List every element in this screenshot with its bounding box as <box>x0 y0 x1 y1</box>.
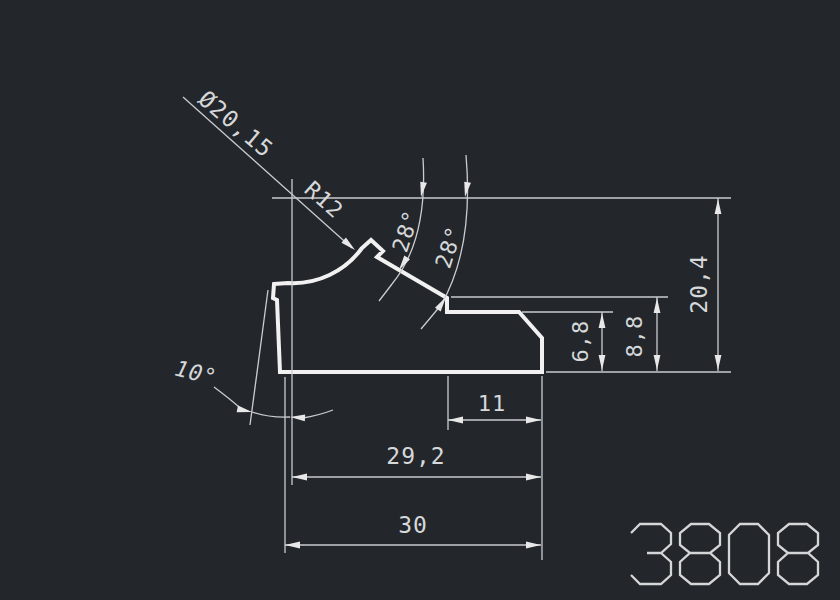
radius-label: R12 <box>300 176 348 223</box>
inner-step-height-label: 6,8 <box>568 320 593 363</box>
cad-canvas: Ø20,15 R12 28° 28° 10° 20,4 8,8 6,8 11 2… <box>0 0 840 600</box>
dim-arrow-icon <box>715 199 722 214</box>
total-height-label: 20,4 <box>686 254 712 313</box>
dim-arrow-icon <box>526 474 541 481</box>
dim-arrow-icon <box>654 355 661 370</box>
draft-angle-line <box>250 290 268 425</box>
angle1-top-arrow-icon <box>418 182 427 198</box>
dim-arrow-icon <box>292 474 307 481</box>
part-number-digit-3 <box>631 524 671 584</box>
angle1-label: 28° <box>388 207 425 255</box>
draft-angle-arc <box>252 412 290 417</box>
part-number-digit-8b <box>778 524 818 584</box>
inner-width-label: 29,2 <box>386 443 445 469</box>
dim-arrow-icon <box>654 298 661 313</box>
draft-angle-arrow-left-icon <box>237 406 253 416</box>
draft-angle-arc-tail <box>303 410 333 418</box>
dim-arrow-icon <box>599 313 606 328</box>
diameter-label: Ø20,15 <box>194 85 279 162</box>
step-width-label: 11 <box>478 391 507 416</box>
angle1-arc-tail <box>379 284 392 301</box>
dim-arrow-icon <box>285 542 300 549</box>
total-width-label: 30 <box>398 512 428 538</box>
part-number: 3808 <box>631 524 818 598</box>
diameter-leader-line <box>183 97 352 248</box>
dim-arrow-icon <box>448 417 463 424</box>
angle2-top-arrow-icon <box>462 182 471 198</box>
dim-arrow-icon <box>526 542 541 549</box>
draft-angle-label: 10° <box>172 356 220 391</box>
part-number-digit-8 <box>680 524 720 584</box>
dim-arrow-icon <box>715 355 722 370</box>
angle2-label: 28° <box>431 223 468 271</box>
part-number-digit-0 <box>729 524 769 584</box>
draft-angle-leader <box>214 387 239 407</box>
dim-arrow-icon <box>599 355 606 370</box>
profile-drawing: Ø20,15 R12 28° 28° 10° 20,4 8,8 6,8 11 2… <box>0 0 840 600</box>
dim-arrow-icon <box>526 417 541 424</box>
outer-step-height-label: 8,8 <box>622 315 647 358</box>
